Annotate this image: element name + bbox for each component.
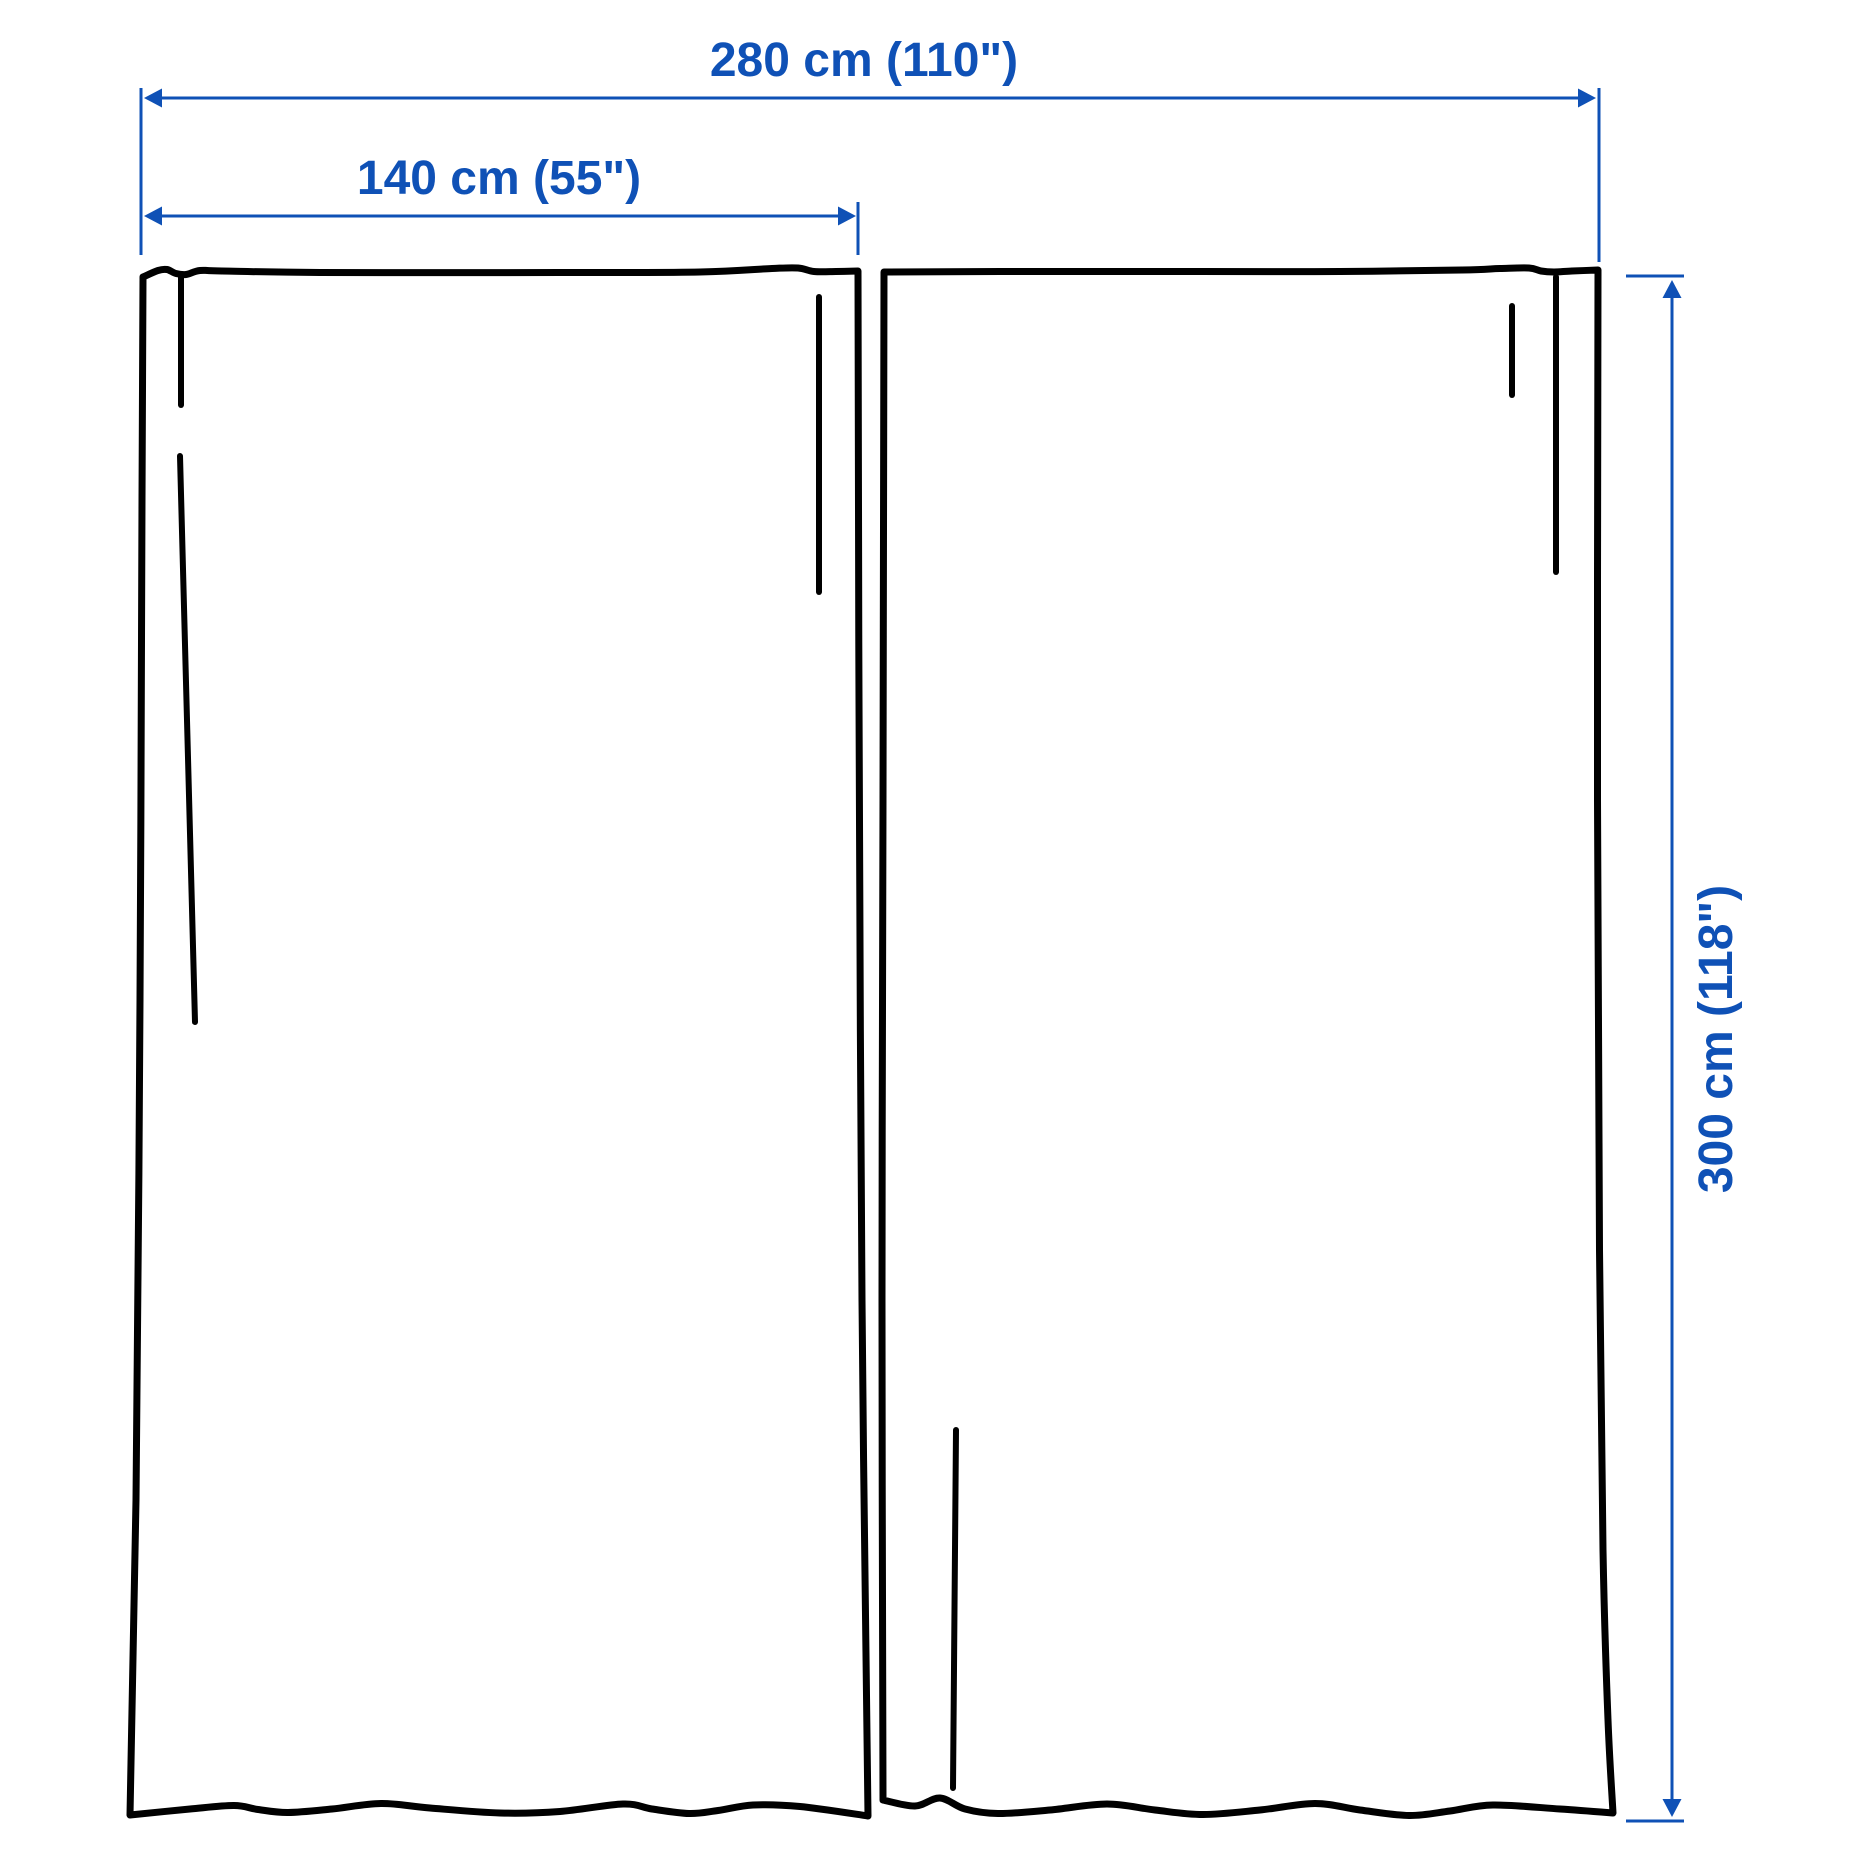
svg-text:140 cm (55"): 140 cm (55") (357, 152, 641, 205)
svg-text:300 cm (118"): 300 cm (118") (1690, 885, 1743, 1193)
svg-text:280 cm (110"): 280 cm (110") (710, 34, 1018, 87)
